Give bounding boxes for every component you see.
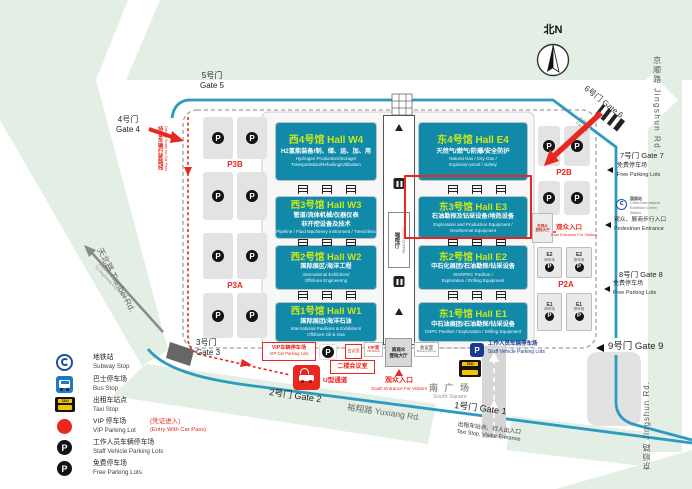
parking-icon: P (212, 132, 224, 144)
parking-icon: P (575, 263, 584, 272)
legend-vip-note-en: (Entry With Car Pass) (150, 427, 206, 434)
pointer-left-icon (607, 167, 613, 173)
parking-icon: P (543, 140, 555, 152)
legend-vip-note-zh: (凭证进入) (150, 418, 180, 426)
gate4-zh: 4号门 (106, 115, 150, 125)
hall-e1-subtitle: 中石油展团/石油勘探/钻采设备 (431, 321, 515, 329)
parking-block: P (237, 233, 267, 279)
parking-icon: P (545, 263, 554, 272)
gate4-en: Gate 4 (106, 125, 150, 135)
pointer-left-icon (605, 222, 611, 228)
east-registration-hall: 东观众 登陆大厅 (532, 213, 553, 243)
parking-label-p3a: P3A (203, 281, 267, 290)
hall-e2-subtitle: 中石化展团/石油勘探/钻采设备 (431, 263, 515, 271)
vip-lot-en: VIP Car Parking Lots (269, 352, 308, 357)
stairs-icon (448, 291, 458, 300)
hall-w4-en2: Transportation/Refueling/Utilization (291, 162, 361, 168)
hall-e4-subtitle: 天然气/燃气/防爆/安全防护 (436, 148, 509, 156)
parking-icon: P (545, 312, 554, 321)
compass-icon (538, 45, 569, 76)
staff-parking-icon: P (470, 343, 484, 357)
gate8-note-en: Free Parking Lots (613, 290, 656, 297)
legend-subway-zh: 地铁站 (93, 354, 113, 362)
hall-e4: 东4号馆 Hall E4 天然气/燃气/防爆/安全防护 Natural Gas … (419, 123, 527, 180)
compass-label: 北N (536, 24, 570, 37)
hall-w2-subtitle: 国际展区/海洋工程 (300, 263, 351, 271)
pedestrian-en: Pedestrian Entrance (614, 226, 664, 233)
route-note: 持证车辆行驶路线 Driving Route for Car Pass (156, 126, 168, 171)
parking-icon: P (246, 250, 258, 262)
parking-icon: P (246, 132, 258, 144)
meeting-room2-zh: 会议室 (348, 349, 360, 354)
south-hall-line2: 登陆大厅 (390, 353, 408, 358)
parking-icon: P (212, 250, 224, 262)
station-en2: Exhibition Center (630, 206, 660, 211)
parking-icon: P (322, 346, 334, 358)
hall-w3-en1: Pipeline / Fluid Machinery Instrument / … (276, 229, 376, 235)
restroom-icon (394, 178, 405, 189)
parking-block: P (538, 126, 560, 166)
hall-w2-title: 西2号馆 Hall W2 (291, 252, 362, 264)
subway-station-icon (616, 199, 627, 210)
pedestrian-zh: 观众、展商步行入口 (614, 217, 666, 224)
hall-w4-subtitle: H2氢能装备/制、储、运、加、用 (281, 148, 371, 156)
meeting-room-en: Meeting Room (417, 350, 437, 353)
south-square-en: South Square (422, 394, 478, 401)
legend-taxi-zh: 出租车站点 (93, 397, 127, 405)
e2-parking-lot: E2 停车场 P (566, 247, 592, 278)
corridor-arrow-icon (395, 124, 403, 131)
floor2-meeting-box: 二楼会议室 (330, 360, 375, 374)
south-entrance-arrow-icon (395, 369, 403, 376)
south-square-zh: 南 广 场 (422, 383, 478, 394)
east-entrance-en: East Entrance For Visitors (551, 233, 597, 238)
legend-staff-en: Staff Vehicle Parking Lots (93, 448, 163, 455)
taxi-icon: TAXI (55, 397, 75, 412)
u-channel-label: U型通道 (323, 377, 347, 385)
hall-e1-title: 东1号馆 Hall E1 (439, 309, 507, 321)
gate9-label: 9号门 Gate 9 (608, 341, 663, 352)
parking-block: P (203, 117, 233, 159)
gate8-label: 8号门 Gate 8 (619, 270, 663, 279)
taxi-icon: TAXI (459, 360, 481, 377)
vip-room-box: VIP室 VIP Room (364, 342, 383, 357)
parking-label-p3b: P3B (203, 160, 267, 169)
parking-block: P (237, 172, 267, 220)
east-entrance-zh: 观众入口 (556, 224, 582, 232)
parking-icon: P (571, 192, 583, 204)
vip-room-en: VIP Room (367, 350, 381, 353)
hall-w1-en2: Offshore Oil & Gas (307, 332, 345, 338)
route-note-en: Driving Route for Car Pass (164, 126, 169, 171)
parking-block: P (538, 181, 560, 215)
parking-icon: P (212, 310, 224, 322)
station-en3: Station (630, 211, 660, 216)
hall-e4-en2: Explosion-proof / Safety (449, 162, 497, 168)
route-arrowhead-right (240, 359, 252, 367)
stairs-icon (322, 291, 332, 300)
taxi-sign-label: TAXI (58, 399, 72, 404)
e2-parking-lot: E2 停车场 P (537, 247, 562, 278)
gate5-label: 5号门 Gate 5 (190, 71, 234, 90)
south-square-label: 南 广 场 South Square (422, 383, 478, 400)
meeting-room-box: 会议室 Meeting Room (414, 342, 439, 357)
stairs-icon (472, 291, 482, 300)
south-registration-hall: 南观众 登陆大厅 (385, 338, 412, 367)
parking-icon: P (571, 140, 583, 152)
gate7-label: 7号门 Gate 7 (620, 151, 664, 160)
staff-parking-zh: 工作人员车辆停车场 (488, 341, 538, 348)
gate3-label: 3号门 Gate 3 (196, 338, 236, 357)
parking-label-p2b: P2B (536, 168, 592, 177)
gate7-note-zh: 免费停车场 (617, 163, 647, 170)
u-channel-icon (293, 365, 320, 390)
floor2-meeting-label: 二楼会议室 (337, 364, 367, 371)
parking-block: P (203, 172, 233, 220)
staff-parking-icon: P (57, 440, 72, 455)
hall-w4-title: 西4号馆 Hall W4 (289, 135, 363, 148)
legend-vip-en: VIP Parking Lot (93, 427, 136, 434)
gate4-label: 4号门 Gate 4 (106, 115, 150, 134)
gate8-note-zh: 免费停车场 (613, 281, 643, 288)
parking-block: P (237, 293, 267, 338)
stairs-icon (298, 185, 308, 194)
stairs-icon (346, 185, 356, 194)
parking-icon: P (543, 192, 555, 204)
parking-icon: P (246, 190, 258, 202)
bus-icon (56, 376, 73, 393)
gate7-note-en: Free Parking Lots (617, 172, 660, 179)
restroom-icon (394, 276, 405, 287)
taxi-sign-label: TAXI (462, 362, 478, 367)
vip-lot-box: VIP车辆停车场 VIP Car Parking Lots (262, 342, 316, 361)
hall-w4: 西4号馆 Hall W4 H2氢能装备/制、储、运、加、用 Hydrogen P… (276, 123, 376, 180)
hall-e1-en1: CNPC Pavilion / Exploration / Drilling E… (425, 329, 521, 335)
e1-parking-lot: E1 停车场 P (537, 293, 562, 331)
legend-staff-zh: 工作人员车辆停车场 (93, 439, 154, 447)
parking-icon: P (575, 312, 584, 321)
hall-w3-subtitle2: 非开挖设备及技术 (301, 221, 351, 229)
legend-free-zh: 免费停车场 (93, 460, 127, 468)
free-parking-icon: P (57, 461, 72, 476)
hall-e2-en2: Exploration / Drilling Equipment (442, 278, 505, 284)
road-label-jingshun-bottom: 京顺路 Jingshun Rd. (642, 366, 652, 470)
stairs-icon (298, 291, 308, 300)
coffee-shop-zh: 咖啡厅 (393, 232, 401, 249)
parking-block: P (203, 233, 233, 279)
east-hall-line2: 登陆大厅 (535, 228, 549, 232)
pointer-left-icon (596, 344, 604, 352)
e3-highlight-box (404, 175, 532, 239)
venue-map: 西4号馆 Hall W4 H2氢能装备/制、储、运、加、用 Hydrogen P… (0, 0, 692, 489)
vip-parking-icon: P (57, 419, 72, 434)
hall-w3: 西3号馆 Hall W3 管道/流体机械/仪器仪表 非开挖设备及技术 Pipel… (276, 197, 376, 238)
legend-free-en: Free Parking Lots (93, 469, 142, 476)
hall-w2: 西2号馆 Hall W2 国际展区/海洋工程 International Exh… (276, 246, 376, 289)
subway-icon (56, 354, 73, 371)
legend-bus-en: Bus Stop (93, 385, 118, 392)
hall-w1-subtitle: 国际展团/海洋石油 (300, 318, 351, 326)
hall-w3-title: 西3号馆 Hall W3 (291, 200, 362, 212)
hall-w3-subtitle: 管道/流体机械/仪器仪表 (293, 212, 358, 220)
parking-block: P (203, 293, 233, 338)
legend-vip-zh: VIP 停车场 (93, 418, 126, 426)
parking-icon: P (246, 310, 258, 322)
corridor-arrow-icon (395, 308, 403, 315)
gate5-en: Gate 5 (190, 81, 234, 91)
southeast-block (587, 352, 641, 426)
south-entrance-zh: 观众入口 (374, 377, 424, 385)
route-note-zh: 持证车辆行驶路线 (156, 126, 163, 171)
hall-e2-title: 东2号馆 Hall E2 (439, 252, 507, 264)
gate3-zh: 3号门 (196, 338, 236, 348)
parking-label-p2a: P2A (538, 280, 594, 289)
hall-w1: 西1号馆 Hall W1 国际展团/海洋石油 International Pav… (276, 303, 376, 341)
hall-w1-title: 西1号馆 Hall W1 (291, 306, 362, 318)
stairs-icon (346, 291, 356, 300)
parking-block: P (237, 117, 267, 159)
legend-taxi-en: Taxi Stop (93, 406, 118, 413)
hall-w2-en2: Offshore Engineering (305, 278, 347, 284)
parking-block: P (564, 181, 590, 215)
legend-bus-zh: 巴士停车场 (93, 376, 127, 384)
legend-subway-en: Subway Stop (93, 363, 129, 370)
pointer-left-icon (604, 286, 610, 292)
e1-parking-lot: E1 停车场 P (566, 293, 592, 331)
meeting-room2-box: 会议室 (345, 344, 362, 359)
hall-e4-title: 东4号馆 Hall E4 (437, 135, 509, 148)
gate5-zh: 5号门 (190, 71, 234, 81)
gate3-en: Gate 3 (196, 348, 236, 358)
hall-e2: 东2号馆 Hall E2 中石化展团/石油勘探/钻采设备 SINOPEC Pav… (419, 246, 527, 289)
station-callout: 国展站 China International Exhibition Cente… (630, 196, 660, 215)
staff-parking-en: Staff Vehicle Parking Lots (488, 349, 545, 355)
stairs-icon (322, 185, 332, 194)
parking-icon: P (212, 190, 224, 202)
stairs-icon (496, 291, 506, 300)
hall-e1: 东1号馆 Hall E1 中石油展团/石油勘探/钻采设备 CNPC Pavili… (419, 303, 527, 341)
vip-parking-card: P (319, 344, 337, 360)
route-arrowhead-down (184, 167, 192, 176)
